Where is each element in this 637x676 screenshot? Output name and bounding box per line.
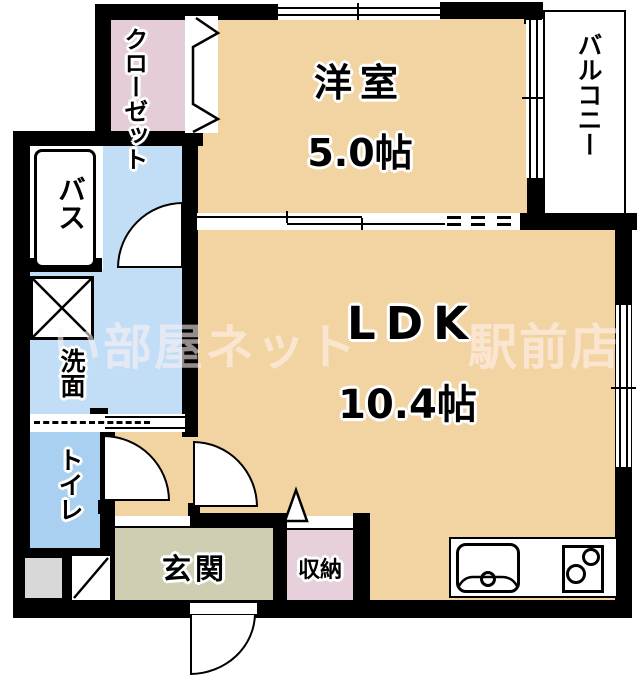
wall-bath-top <box>13 131 203 146</box>
slider-dash3b <box>497 223 511 226</box>
front-door-opening-line <box>190 601 257 603</box>
western-room-label: 洋室 <box>270 52 450 107</box>
window-top-tick <box>357 3 359 20</box>
meter-box-diagonal <box>72 556 110 600</box>
western-room-size: 5.0帖 <box>275 122 445 177</box>
washroom-door-line1 <box>105 416 185 418</box>
slider-tick1 <box>286 211 288 223</box>
bath-label: バス <box>50 175 90 245</box>
closet-door-strip <box>185 16 218 133</box>
window-ldk-tick <box>611 387 636 389</box>
washroom-door-line2 <box>105 427 185 429</box>
floorplan: い部屋ネット 駅前店 <box>0 0 637 676</box>
slider-dash1a <box>447 216 461 219</box>
window-top-line1 <box>278 7 440 9</box>
storage-opening <box>287 516 353 528</box>
washroom-door-dashes <box>34 421 150 424</box>
wall-outer-bottom <box>13 600 632 618</box>
balcony-label: バルコニー <box>570 32 606 217</box>
washroom-label: 洗面 <box>53 348 89 412</box>
toilet-label: トイレ <box>51 447 87 539</box>
ldk-size: 10.4帖 <box>315 372 500 430</box>
slider-line1 <box>197 216 362 218</box>
entrance-step-line <box>115 526 190 528</box>
stove-burner-1 <box>566 564 586 584</box>
window-balcony-line2 <box>536 20 538 178</box>
slider-tick2 <box>361 218 363 230</box>
stove-burner-2 <box>582 548 600 566</box>
wall-balcony-post-bottom <box>527 178 543 218</box>
window-ldk-line2 <box>626 305 628 467</box>
slider-dash3a <box>497 216 511 219</box>
closet-label: クローゼット <box>116 27 151 123</box>
wall-storage-right <box>353 513 370 603</box>
wall-outer-left <box>13 131 30 618</box>
wall-washroom-ldk <box>182 133 198 437</box>
front-door-arc <box>190 613 256 675</box>
entrance-label: 玄関 <box>135 546 255 588</box>
ldk-label: LDK <box>330 297 495 350</box>
window-top <box>278 2 440 20</box>
sink-drain <box>480 571 496 587</box>
wall-closet-left <box>95 4 111 144</box>
window-balcony-tick <box>522 97 545 99</box>
meter-box-gray <box>25 558 62 598</box>
slider-dash2a <box>471 216 485 219</box>
wall-hallway-south <box>190 513 287 528</box>
slider-dash2b <box>471 223 485 226</box>
slider-dash1b <box>447 223 461 226</box>
slider-line2 <box>287 223 445 225</box>
door-hinge-toilet <box>98 500 108 514</box>
storage-label: 収納 <box>288 552 352 584</box>
window-top-line2 <box>278 14 440 16</box>
window-balcony-line1 <box>529 20 531 178</box>
watermark-left: い部屋ネット <box>52 308 358 379</box>
